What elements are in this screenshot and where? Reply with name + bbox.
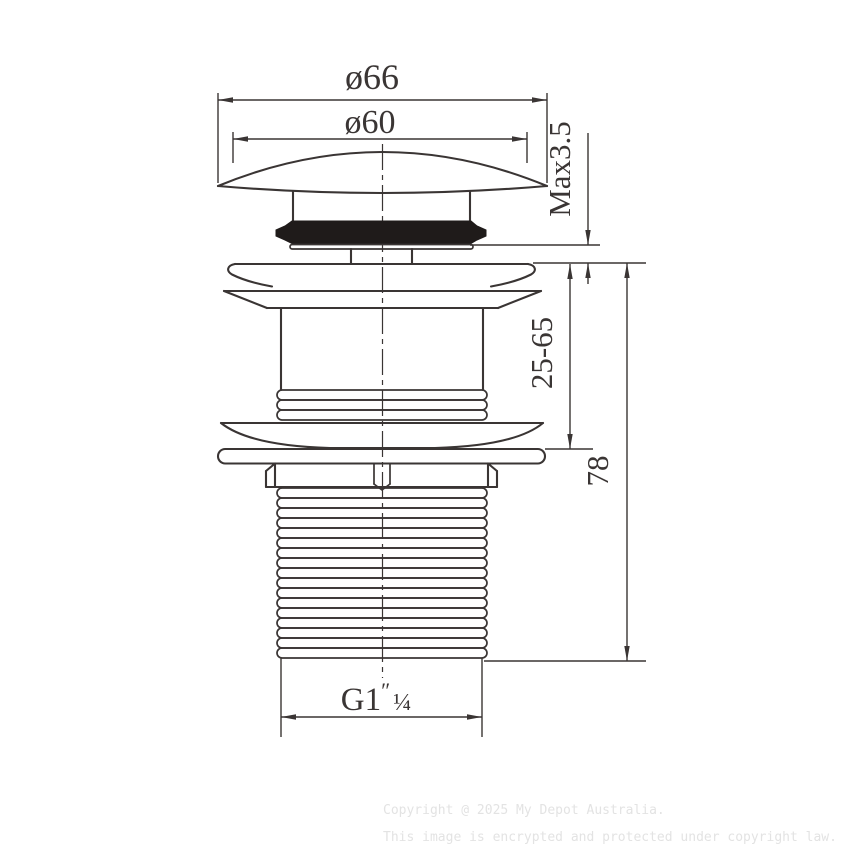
technical-drawing-canvas: ø66 ø60 Max3.5 25-65 78 <box>0 0 850 850</box>
dimension-label-max-deck-gap: Max3.5 <box>542 121 577 217</box>
copyright-line-2: This image is encrypted and protected un… <box>383 824 837 851</box>
copyright-line-1: Copyright @ 2025 My Depot Australia. <box>383 797 837 824</box>
copyright-watermark: Copyright @ 2025 My Depot Australia. Thi… <box>383 797 837 851</box>
dimension-thread-size: G1″¼ <box>281 658 482 737</box>
dimension-body-length: 78 <box>484 263 646 661</box>
backnut <box>266 464 497 491</box>
dimension-max-deck-gap: Max3.5 <box>470 121 646 284</box>
dimension-label-clamping-range: 25-65 <box>524 317 559 389</box>
dimension-label-thread-size: G1″¼ <box>341 678 412 718</box>
friction-washer <box>218 449 545 464</box>
dimension-label-outer-diameter: ø66 <box>345 57 399 97</box>
rubber-seal <box>276 221 486 244</box>
dimension-cap-top-diameter: ø60 <box>233 104 527 163</box>
cap-stem-housing <box>293 191 470 221</box>
seal-backing-plate <box>290 245 473 250</box>
pop-up-waste-drawing: ø66 ø60 Max3.5 25-65 78 <box>0 0 850 850</box>
dimension-label-cap-top-diameter: ø60 <box>345 104 396 141</box>
dimension-label-body-length: 78 <box>580 456 615 487</box>
plug-stem <box>351 249 412 264</box>
